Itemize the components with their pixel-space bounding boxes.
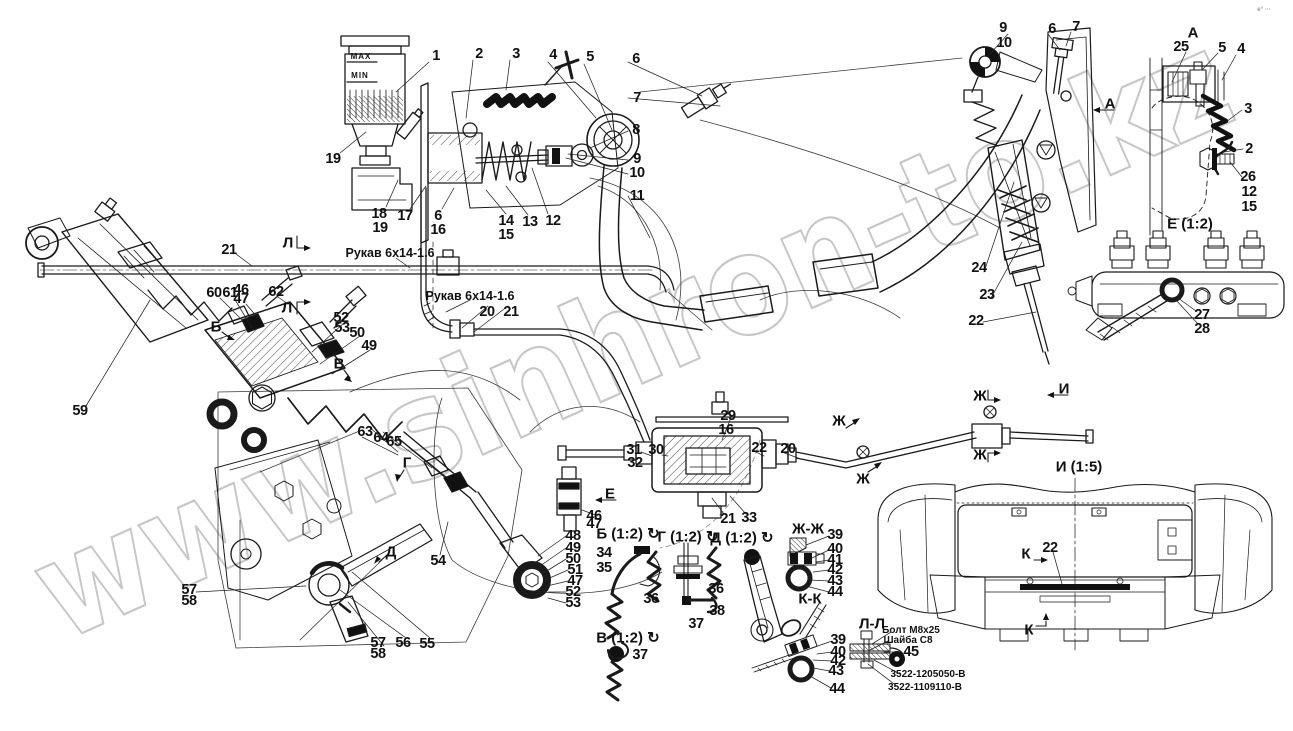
- mounting-plate: [421, 83, 428, 243]
- detail-ll: [850, 631, 905, 668]
- pedal-bracket: [452, 52, 735, 208]
- pipe-20: [796, 406, 1093, 468]
- detail-v12: [607, 643, 628, 700]
- view-e12-drawing: [1068, 231, 1284, 340]
- view-i15-drawing: [878, 478, 1272, 650]
- fitting-46-47: [557, 467, 581, 531]
- diagram-canvas: www.sinhron-to.kz: [0, 0, 1293, 731]
- detail-d12: [744, 549, 782, 642]
- detail-zhzh: [788, 538, 824, 589]
- detail-g12: [648, 543, 720, 612]
- diagram-artwork: www.sinhron-to.kz: [0, 0, 1293, 731]
- fluid-reservoir: [341, 36, 409, 165]
